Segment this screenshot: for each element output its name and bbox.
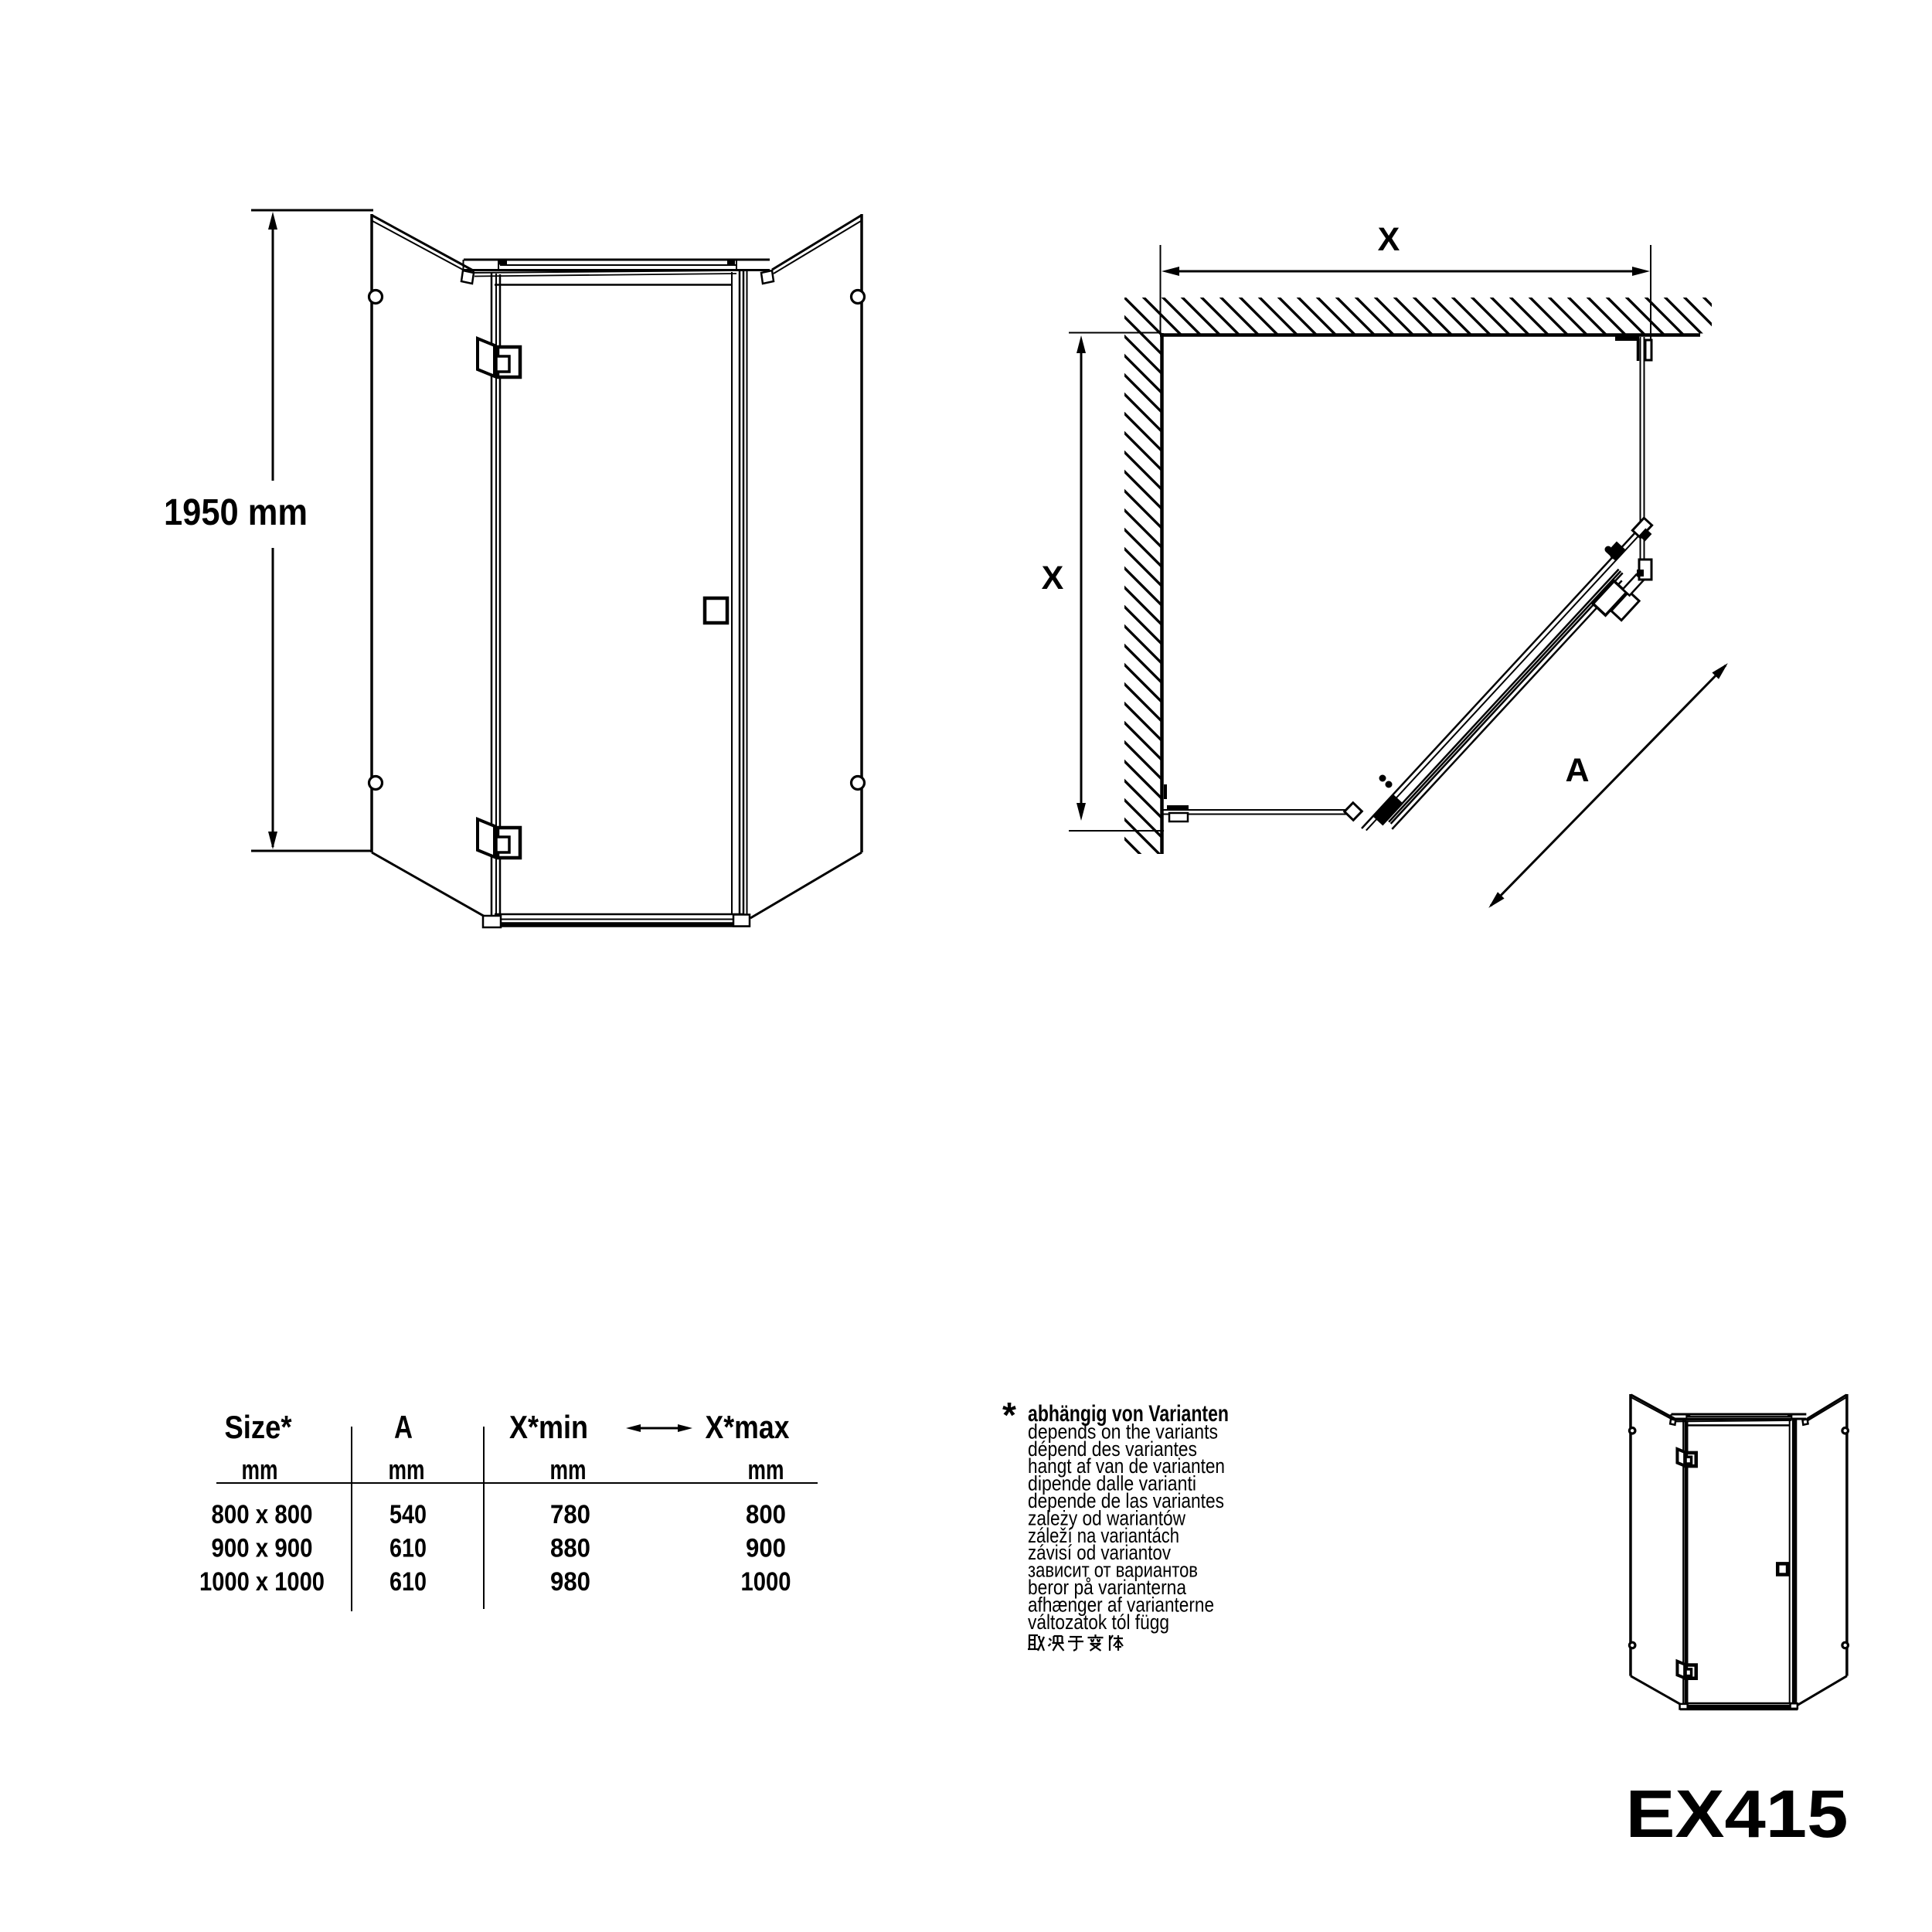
svg-text:610: 610 [389,1534,427,1563]
svg-text:1000: 1000 [741,1567,791,1597]
svg-text:900 x 900: 900 x 900 [212,1534,313,1563]
svg-text:880: 880 [550,1534,590,1563]
svg-text:X*max: X*max [706,1409,791,1445]
svg-text:A: A [1565,752,1589,789]
svg-text:mm: mm [242,1454,278,1485]
svg-text:1000 x 1000: 1000 x 1000 [199,1567,325,1597]
svg-text:980: 980 [550,1567,590,1597]
svg-text:1950 mm: 1950 mm [164,492,308,533]
svg-text:X*min: X*min [509,1409,588,1445]
svg-text:X: X [1378,221,1400,258]
svg-text:mm: mm [389,1454,425,1485]
svg-text:EX415: EX415 [1626,1777,1849,1852]
svg-text:mm: mm [748,1454,784,1485]
svg-text:800: 800 [746,1500,786,1529]
svg-text:Size*: Size* [225,1409,293,1445]
svg-text:X: X [1042,560,1064,597]
svg-text:*: * [1002,1395,1016,1435]
svg-text:610: 610 [389,1567,427,1597]
svg-text:változatok tól függ: változatok tól függ [1028,1611,1169,1634]
svg-text:900: 900 [746,1534,786,1563]
svg-text:A: A [394,1409,413,1445]
svg-text:780: 780 [550,1500,590,1529]
svg-text:800 x 800: 800 x 800 [212,1500,313,1529]
svg-text:mm: mm [550,1454,587,1485]
svg-text:540: 540 [389,1500,427,1529]
